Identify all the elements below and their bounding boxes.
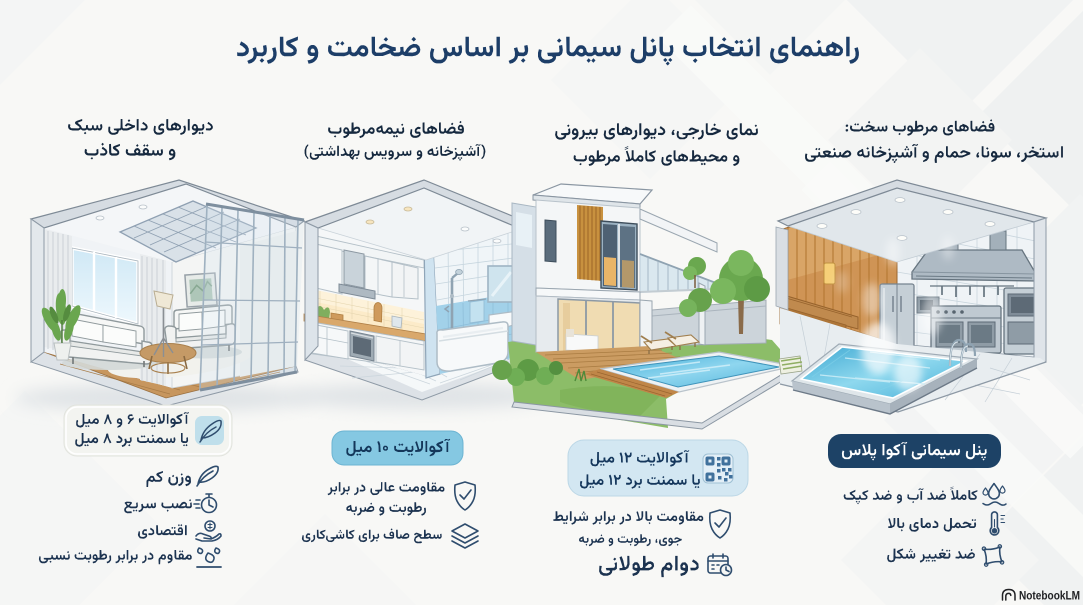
svg-text:NotebookLM: NotebookLM	[1019, 589, 1080, 603]
